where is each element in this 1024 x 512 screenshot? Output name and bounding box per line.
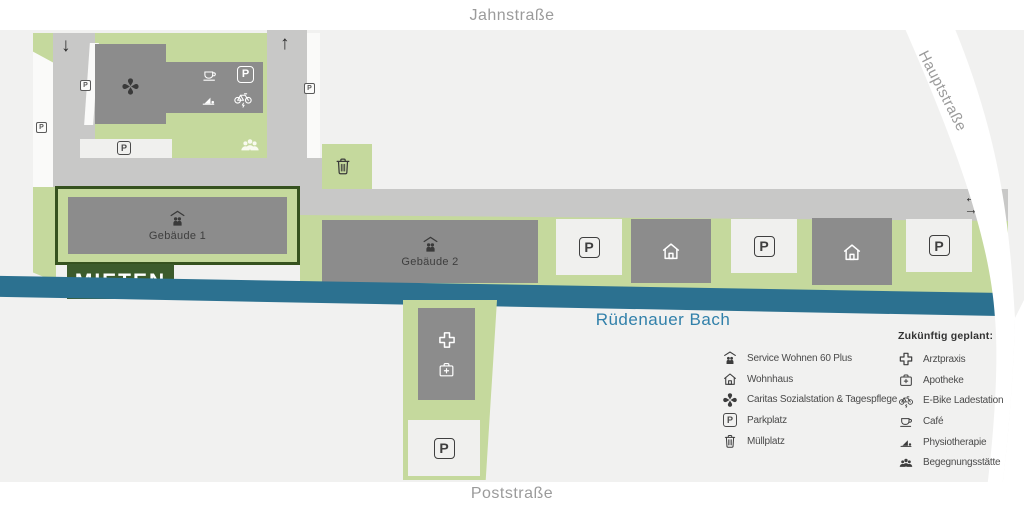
- street-label-poststrasse: Poststraße: [0, 485, 1024, 503]
- legend-item: Apotheke: [898, 370, 1003, 391]
- service-wohnen-icon: [168, 209, 187, 228]
- wohnhaus-icon: [660, 240, 682, 262]
- wohnhaus-icon: [841, 241, 863, 263]
- gebaeude-1-building: Gebäude 1: [68, 197, 287, 254]
- caritas-icon: [722, 392, 738, 408]
- legend-item-label: E-Bike Ladestation: [923, 395, 1003, 406]
- parking-lot: P: [731, 219, 797, 273]
- parkplatz-icon: P: [434, 438, 455, 459]
- wohnhaus-icon: [722, 371, 738, 387]
- apotheke-icon: [437, 360, 456, 379]
- legend-planned-title: Zukünftig geplant:: [898, 330, 1003, 342]
- legend-item: Wohnhaus: [722, 369, 897, 390]
- one-way-down-arrow-icon: ↓: [61, 36, 71, 55]
- legend-planned: Zukünftig geplant: Arztpraxis Apotheke E…: [898, 330, 1003, 473]
- legend-item: P Parkplatz: [722, 410, 897, 431]
- legend-item: Café: [898, 411, 1003, 432]
- parkplatz-icon: P: [237, 66, 254, 83]
- cafe-icon: [898, 413, 914, 429]
- parkplatz-icon: P: [117, 141, 131, 155]
- service-wohnen-icon: [722, 350, 738, 366]
- legend-item-label: Wohnhaus: [747, 374, 793, 385]
- legend-item-label: Müllplatz: [747, 436, 785, 447]
- legend-item-label: Begegnungsstätte: [923, 457, 1000, 468]
- one-way-up-arrow-icon: ↑: [280, 34, 290, 53]
- apotheke-icon: [898, 372, 914, 388]
- parkplatz-sign-icon: P: [304, 83, 315, 94]
- parkplatz-sign-icon: P: [80, 80, 91, 91]
- parkplatz-icon: P: [579, 237, 600, 258]
- green-strip-left: [33, 187, 56, 282]
- physiotherapie-icon: [200, 91, 217, 108]
- muellplatz-icon: [333, 156, 353, 176]
- ebike-icon: [898, 393, 914, 409]
- begegnungsstaette-icon: [239, 134, 261, 156]
- gebaeude-1-label: Gebäude 1: [149, 230, 206, 242]
- parkplatz-sign-icon: P: [36, 122, 47, 133]
- planned-medical-building: [418, 308, 475, 400]
- parkplatz-icon: P: [929, 235, 950, 256]
- ebike-icon: [233, 89, 253, 109]
- legend-item-label: Arztpraxis: [923, 354, 965, 365]
- legend-item-label: Service Wohnen 60 Plus: [747, 353, 852, 364]
- legend-item: Müllplatz: [722, 431, 897, 452]
- gebaeude-1-highlight-box: Gebäude 1: [55, 186, 300, 265]
- legend-item: Service Wohnen 60 Plus: [722, 348, 897, 369]
- site-map: P P P P P Gebäude 1 MIETEN Gebäude 2 P P: [0, 0, 1024, 512]
- gebaeude-2-building: Gebäude 2: [322, 220, 538, 283]
- muellplatz-icon: [722, 433, 738, 449]
- legend-item-label: Parkplatz: [747, 415, 787, 426]
- stream-label: Rüdenauer Bach: [578, 310, 748, 330]
- street-label-jahnstrasse: Jahnstraße: [0, 7, 1024, 25]
- arztpraxis-icon: [437, 330, 457, 350]
- legend-item-label: Physiotherapie: [923, 437, 986, 448]
- legend-item: Arztpraxis: [898, 349, 1003, 370]
- parking-lot: P: [556, 219, 622, 275]
- parkplatz-icon: P: [723, 413, 737, 427]
- parkplatz-icon: P: [754, 236, 775, 257]
- legend-item: Begegnungsstätte: [898, 452, 1003, 473]
- begegnungsstaette-icon: [898, 455, 914, 471]
- legend-item-label: Café: [923, 416, 943, 427]
- gebaeude-2-label: Gebäude 2: [401, 256, 458, 268]
- wohnhaus-building: [812, 218, 892, 285]
- parking-lot: P: [408, 420, 480, 476]
- legend-item-label: Apotheke: [923, 375, 964, 386]
- service-wohnen-icon: [421, 235, 440, 254]
- caritas-icon: [121, 77, 140, 96]
- two-way-right-arrow-icon: →: [964, 202, 978, 216]
- parking-lot: P: [906, 219, 972, 272]
- legend-item: Physiotherapie: [898, 432, 1003, 453]
- physiotherapie-icon: [898, 434, 914, 450]
- legend-item: Caritas Sozialstation & Tagespflege: [722, 389, 897, 410]
- arztpraxis-icon: [898, 351, 914, 367]
- cafe-icon: [201, 66, 218, 83]
- wohnhaus-building: [631, 219, 711, 283]
- legend-item: E-Bike Ladestation: [898, 390, 1003, 411]
- legend-existing: Service Wohnen 60 Plus Wohnhaus Caritas …: [722, 348, 897, 451]
- legend-item-label: Caritas Sozialstation & Tagespflege: [747, 394, 897, 405]
